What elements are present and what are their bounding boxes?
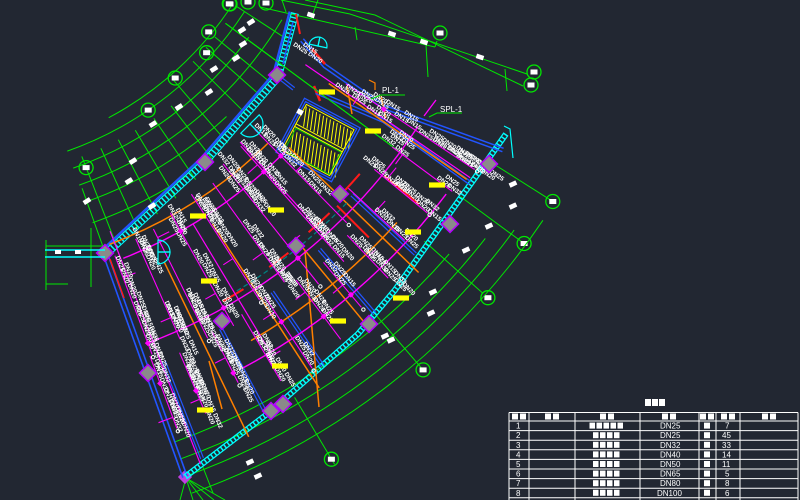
svg-text:DN80: DN80 [660,479,681,488]
svg-text:14: 14 [722,450,731,459]
svg-text:DN25: DN25 [660,431,681,440]
svg-text:3: 3 [516,441,521,450]
svg-text:PL-1: PL-1 [382,86,399,95]
svg-text:DN50: DN50 [660,460,681,469]
svg-text:2: 2 [516,431,521,440]
svg-text:8: 8 [516,489,521,498]
svg-text:DN40: DN40 [660,450,681,459]
svg-text:45: 45 [722,431,731,440]
svg-text:33: 33 [722,441,731,450]
svg-text:DN32: DN32 [660,441,681,450]
svg-text:DN25: DN25 [660,422,681,431]
svg-text:5: 5 [516,460,521,469]
svg-text:7: 7 [725,422,730,431]
svg-text:7: 7 [516,479,521,488]
svg-text:4: 4 [516,450,521,459]
svg-text:11: 11 [722,460,731,469]
svg-text:6: 6 [725,489,730,498]
svg-text:6: 6 [516,470,521,479]
svg-text:DN65: DN65 [660,470,681,479]
svg-text:5: 5 [725,470,730,479]
svg-text:1: 1 [516,422,521,431]
svg-text:DN100: DN100 [657,489,682,498]
svg-text:8: 8 [725,479,730,488]
